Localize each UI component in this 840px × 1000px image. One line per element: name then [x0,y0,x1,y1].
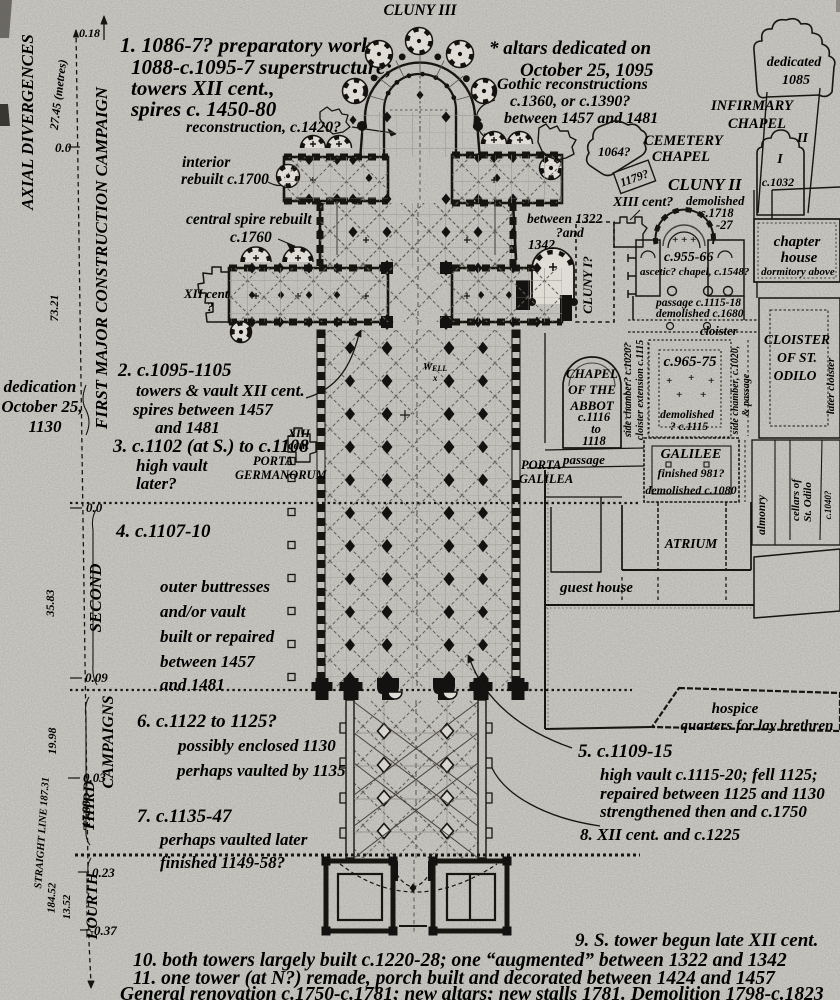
svg-text:+: + [708,375,714,387]
svg-text:towers & vault XII cent.: towers & vault XII cent. [136,381,305,400]
svg-text:9. S. tower begun late XII cen: 9. S. tower begun late XII cent. [575,930,818,951]
svg-text:later cloister: later cloister [825,357,837,414]
svg-text:finished 981?: finished 981? [657,466,724,480]
svg-text:c.955-66: c.955-66 [664,250,713,265]
svg-text:dormitory above: dormitory above [761,266,835,278]
svg-text:interior: interior [182,154,231,171]
svg-text:and 1481: and 1481 [160,675,225,694]
svg-text:CLUNY III: CLUNY III [383,2,457,19]
svg-text:c.1760: c.1760 [230,229,272,246]
svg-text:3. c.1102 (at S.) to c.1108: 3. c.1102 (at S.) to c.1108 [112,436,309,457]
svg-text:6. c.1122 to 1125?: 6. c.1122 to 1125? [137,711,277,732]
svg-text:and/or vault: and/or vault [160,602,247,621]
svg-text:OF THE: OF THE [568,382,616,397]
svg-text:CLOISTER: CLOISTER [764,332,830,347]
svg-text:almonry: almonry [756,494,768,535]
svg-text:184.52: 184.52 [45,882,58,913]
svg-text:dedicated: dedicated [767,55,822,70]
svg-text:CAMPAIGNS: CAMPAIGNS [100,695,117,788]
svg-text:+: + [688,372,694,384]
svg-text:reconstruction, c.1420?: reconstruction, c.1420? [186,119,341,136]
svg-text:AXIAL DIVERGENCES: AXIAL DIVERGENCES [18,34,37,211]
svg-text:?: ? [207,299,214,314]
svg-text:spires c. 1450-80: spires c. 1450-80 [130,97,277,121]
svg-text:chapter: chapter [774,234,821,250]
svg-text:CEMETERY: CEMETERY [644,133,724,149]
svg-text:1118: 1118 [582,434,606,448]
svg-text:+: + [700,389,706,401]
svg-text:GALILEE: GALILEE [661,447,722,462]
svg-text:demolished c.1080: demolished c.1080 [645,483,736,497]
svg-text:possibly enclosed 1130: possibly enclosed 1130 [176,736,336,755]
svg-text:central spire rebuilt: central spire rebuilt [186,211,312,228]
svg-text:dedication: dedication [4,377,77,396]
svg-text:and 1481: and 1481 [155,418,220,437]
svg-text:CLUNY II: CLUNY II [668,175,743,194]
svg-text:side chamber, c.1020,: side chamber, c.1020, [730,346,741,436]
svg-text:ODILO: ODILO [774,368,817,383]
svg-text:St. Odilo: St. Odilo [802,482,814,522]
svg-text:Gothic reconstructions: Gothic reconstructions [497,76,648,93]
svg-text:cloister extension c.1115: cloister extension c.1115 [635,340,646,440]
svg-text:cellars of: cellars of [790,478,802,521]
svg-text:+: + [666,375,672,387]
svg-text:XII cent: XII cent [183,286,229,301]
svg-text:ATRIUM: ATRIUM [664,536,719,551]
svg-text:OF ST.: OF ST. [777,350,817,365]
svg-text:c.965-75: c.965-75 [664,354,717,370]
svg-text:5. c.1109-15: 5. c.1109-15 [578,741,673,762]
svg-text:4. c.1107-10: 4. c.1107-10 [115,521,211,542]
svg-text:CHAPEL: CHAPEL [652,149,710,165]
svg-text:perhaps vaulted later: perhaps vaulted later [158,830,308,849]
svg-text:* altars dedicated on: * altars dedicated on [489,38,651,59]
svg-text:strengthened then and c.1750: strengthened then and c.1750 [599,802,807,821]
svg-text:later?: later? [136,474,177,493]
svg-text:& passage: & passage [741,373,752,416]
svg-text:repaired between 1125 and 1130: repaired between 1125 and 1130 [600,784,825,803]
svg-text:13.52: 13.52 [61,894,73,919]
svg-text:General renovation c.1750-c.17: General renovation c.1750-c.1781; new al… [120,984,824,1000]
svg-text:ascetic? chapel, c.1548?: ascetic? chapel, c.1548? [640,266,750,278]
svg-text:? c.1115: ? c.1115 [670,421,709,433]
svg-text:1085: 1085 [782,73,810,88]
svg-text:spires between 1457: spires between 1457 [132,400,274,419]
svg-text:SECOND: SECOND [86,564,105,633]
svg-text:between 1322: between 1322 [527,211,603,226]
svg-text:house: house [781,250,818,266]
svg-text:October 25,: October 25, [1,397,82,416]
svg-text:demolished c.1680: demolished c.1680 [656,308,744,320]
svg-text:1130: 1130 [28,417,62,436]
svg-text:passage: passage [562,452,605,467]
svg-text:1342: 1342 [528,237,555,252]
svg-text:73.21: 73.21 [47,295,61,322]
svg-text:guest house: guest house [559,580,633,596]
svg-text:INFIRMARY: INFIRMARY [710,98,794,114]
svg-text:+: + [676,389,682,401]
svg-text:side chamber? c.1020?: side chamber? c.1020? [623,343,634,438]
svg-text:0.09: 0.09 [85,670,108,685]
svg-text:35.83: 35.83 [43,590,57,618]
svg-text:outer buttresses: outer buttresses [160,577,270,596]
svg-text:ELL: ELL [431,364,447,373]
svg-text:cloister: cloister [700,324,738,338]
svg-text:-27: -27 [716,218,733,232]
svg-text:I: I [776,152,783,167]
svg-text:XIII cent?: XIII cent? [612,195,673,210]
svg-text:between 1457: between 1457 [160,652,256,671]
svg-text:II: II [796,131,808,146]
svg-text:hospice: hospice [712,701,759,717]
svg-text:PORTA: PORTA [521,458,561,472]
svg-text:19.98: 19.98 [45,728,59,755]
svg-text:high vault: high vault [136,456,209,475]
svg-text:x: x [432,373,438,383]
svg-text:GALILEA: GALILEA [519,472,573,486]
svg-text:demolished: demolished [660,409,714,421]
svg-text:THIRD: THIRD [81,780,98,831]
svg-text:CLUNY I?: CLUNY I? [580,256,595,314]
svg-text:7. c.1135-47: 7. c.1135-47 [137,806,233,827]
svg-text:quarters for lay brethren: quarters for lay brethren [681,718,834,734]
svg-text:c.1040?: c.1040? [823,490,833,519]
svg-text:c.1360, or c.1390?: c.1360, or c.1390? [510,93,630,110]
svg-text:high vault c.1115-20; fell 112: high vault c.1115-20; fell 1125; [600,765,818,784]
svg-text:built or repaired: built or repaired [160,627,275,646]
svg-text:finished 1149-58?: finished 1149-58? [160,853,285,872]
svg-text:+ + +: + + + [672,234,696,246]
svg-text:1064?: 1064? [598,144,631,159]
svg-text:0.18: 0.18 [79,26,100,40]
svg-text:c.1032: c.1032 [762,175,794,189]
svg-text:?and: ?and [556,225,584,240]
svg-text:CHAPEL: CHAPEL [566,366,618,381]
svg-text:perhaps vaulted by 1135: perhaps vaulted by 1135 [175,761,346,780]
svg-text:2. c.1095-1105: 2. c.1095-1105 [117,360,232,381]
svg-text:rebuilt c.1700: rebuilt c.1700 [181,171,269,188]
svg-text:CHAPEL: CHAPEL [728,116,786,132]
svg-text:1. 1086-7? preparatory work: 1. 1086-7? preparatory work [120,33,372,57]
svg-text:8. XII cent. and c.1225: 8. XII cent. and c.1225 [580,825,741,844]
svg-text:GERMANORUM: GERMANORUM [235,468,328,482]
svg-text:FOURTH: FOURTH [84,872,101,940]
svg-text:FIRST MAJOR CONSTRUCTION CAMPA: FIRST MAJOR CONSTRUCTION CAMPAIGN [92,86,111,430]
